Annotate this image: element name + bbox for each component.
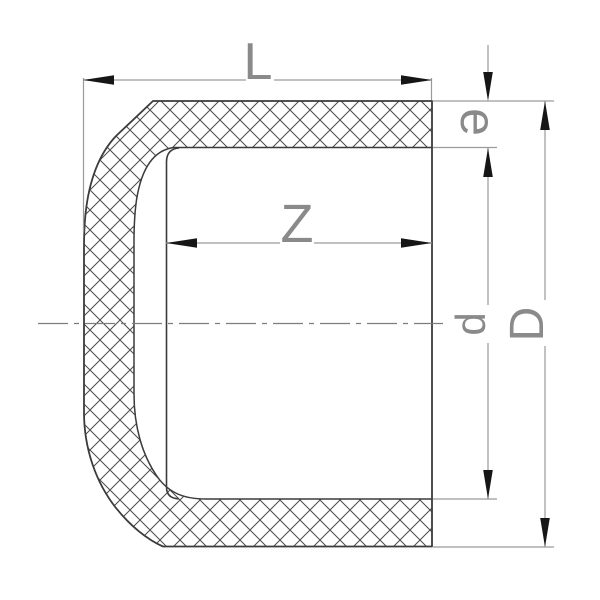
L-arrow-right <box>401 75 432 85</box>
overall-length-label: L <box>244 33 273 91</box>
D-arrow-down <box>540 518 550 547</box>
Z-arrow-left <box>166 238 197 248</box>
dimension-Z: Z <box>166 194 432 254</box>
drawing-sheet: L Z e d <box>0 0 600 600</box>
outer-diameter-label: D <box>501 307 554 342</box>
d-arrow-down <box>483 470 493 499</box>
dimension-e: e <box>433 45 554 148</box>
D-arrow-up <box>540 101 550 130</box>
L-arrow-left <box>83 75 114 85</box>
cap-section-drawing: L Z e d <box>0 0 600 600</box>
inner-diameter-label: d <box>447 312 494 335</box>
socket-depth-label: Z <box>281 194 314 254</box>
Z-arrow-right <box>401 238 432 248</box>
wall-thickness-label: e <box>450 108 506 136</box>
e-arrow-down <box>483 72 493 101</box>
d-arrow-up <box>483 148 493 177</box>
